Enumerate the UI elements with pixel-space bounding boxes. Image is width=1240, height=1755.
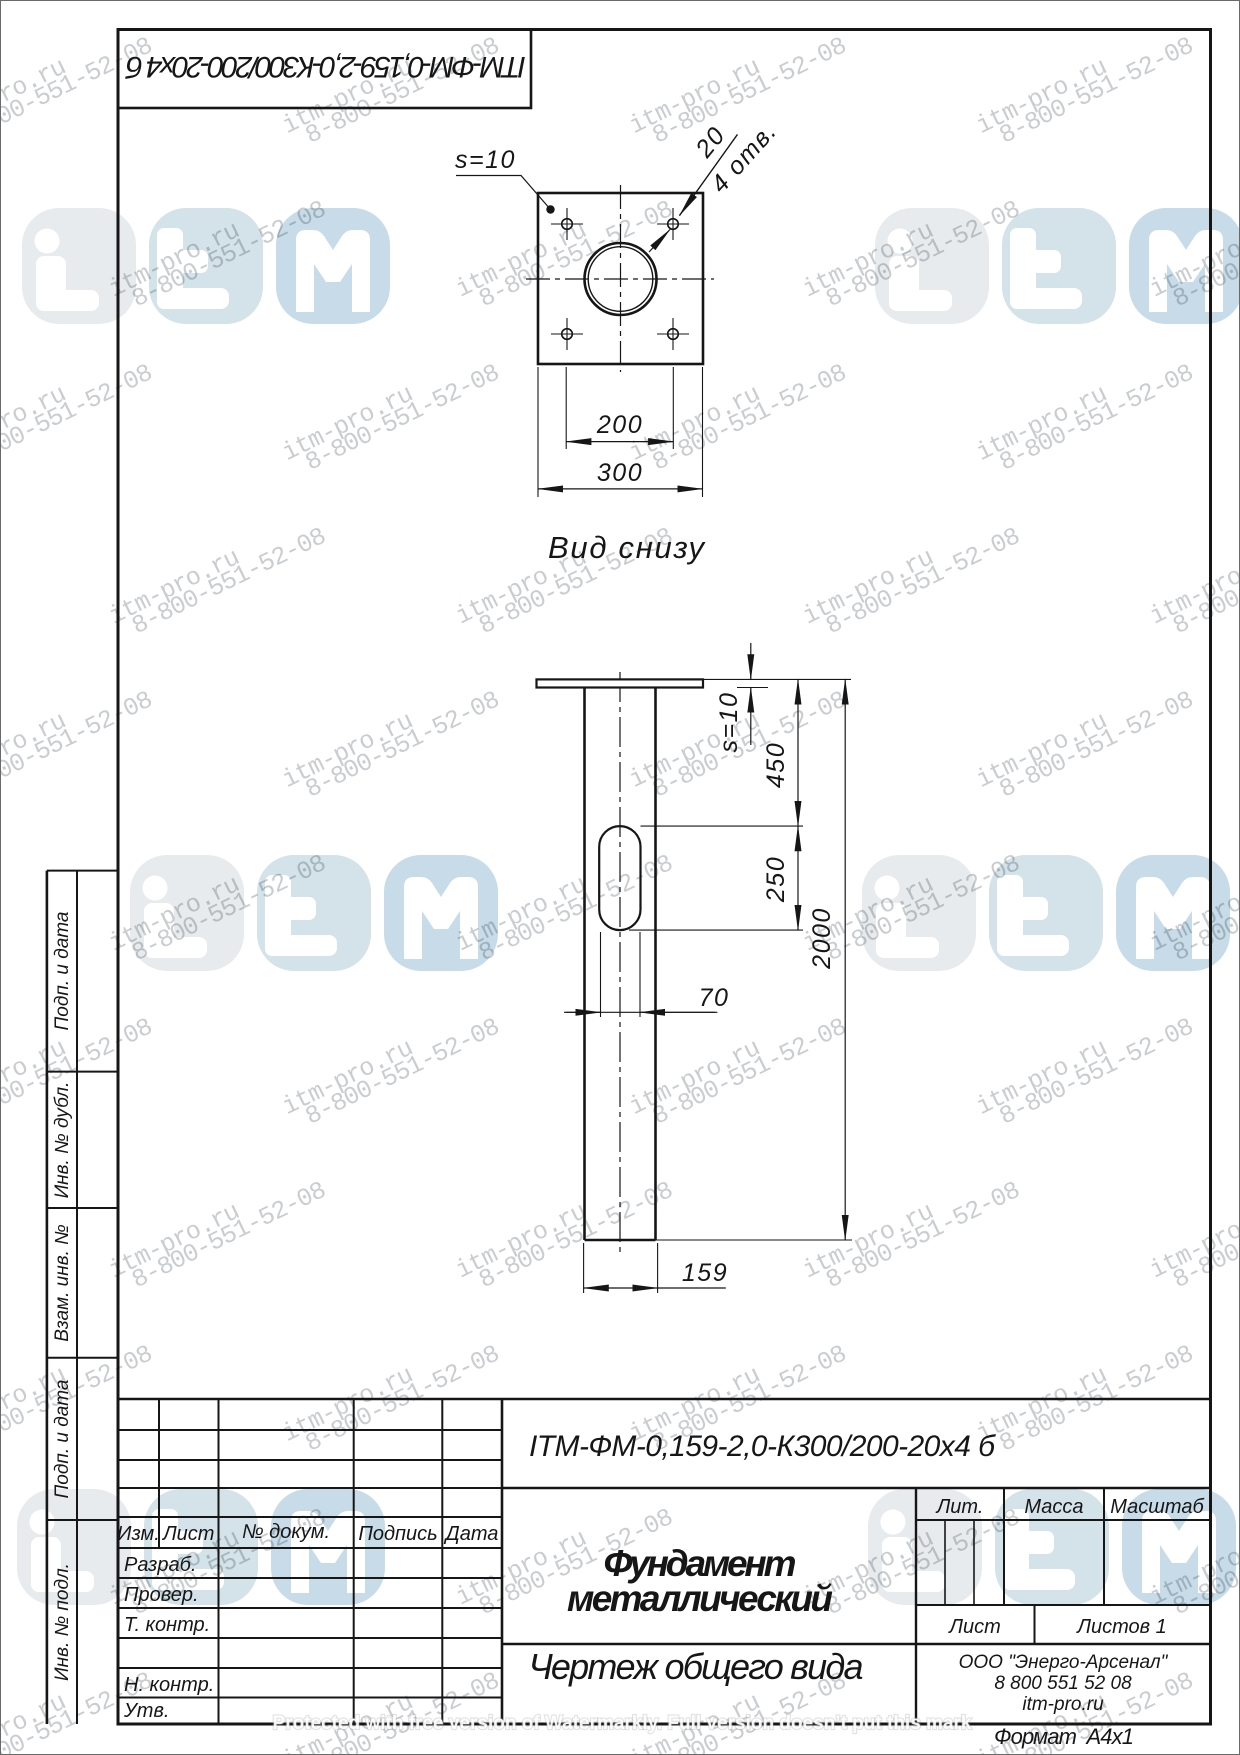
- svg-text:159: 159: [682, 1259, 728, 1287]
- svg-text:ITM-ФМ-0,159-2,0-К300/200-20x4: ITM-ФМ-0,159-2,0-К300/200-20x4 б: [529, 1430, 996, 1463]
- svg-text:2000: 2000: [808, 907, 836, 970]
- svg-text:Т. контр.: Т. контр.: [124, 1614, 210, 1636]
- svg-text:450: 450: [762, 742, 790, 788]
- svg-text:Лист: Лист: [161, 1523, 215, 1545]
- svg-text:Чертеж общего вида: Чертеж общего вида: [529, 1646, 864, 1687]
- svg-text:Подп. и дата: Подп. и дата: [52, 1380, 73, 1499]
- svg-text:Листов 1: Листов 1: [1075, 1616, 1167, 1638]
- svg-text:металлический: металлический: [567, 1578, 833, 1619]
- svg-text:ООО "Энерго-Арсенал": ООО "Энерго-Арсенал": [959, 1652, 1169, 1673]
- svg-text:Инв. № подл.: Инв. № подл.: [52, 1563, 73, 1681]
- svg-text:250: 250: [762, 856, 790, 903]
- svg-text:ITM-ФМ-0,159-2,0-К300/200-20x4: ITM-ФМ-0,159-2,0-К300/200-20x4 б: [125, 50, 526, 83]
- svg-text:Н. контр.: Н. контр.: [124, 1674, 214, 1696]
- svg-text:Изм.: Изм.: [117, 1523, 160, 1545]
- svg-text:Разраб.: Разраб.: [124, 1554, 196, 1576]
- svg-text:Масса: Масса: [1024, 1496, 1083, 1518]
- svg-text:Масштаб: Масштаб: [1110, 1496, 1204, 1518]
- svg-text:Protected with free version of: Protected with free version of Watermark…: [273, 1713, 972, 1734]
- svg-text:s=10: s=10: [715, 692, 743, 753]
- svg-text:Подпись: Подпись: [358, 1523, 437, 1545]
- svg-text:200: 200: [596, 411, 643, 439]
- svg-text:s=10: s=10: [455, 146, 516, 174]
- svg-text:Взам. инв. №: Взам. инв. №: [52, 1224, 73, 1342]
- svg-text:Лит.: Лит.: [935, 1496, 984, 1518]
- svg-text:Инв. № дубл.: Инв. № дубл.: [52, 1082, 73, 1199]
- svg-text:8 800 551 52 08: 8 800 551 52 08: [994, 1673, 1132, 1694]
- svg-text:Провер.: Провер.: [124, 1584, 199, 1606]
- svg-text:Утв.: Утв.: [123, 1700, 169, 1722]
- svg-text:Вид снизу: Вид снизу: [548, 530, 707, 565]
- svg-text:Формат А4х1: Формат А4х1: [994, 1724, 1134, 1749]
- svg-text:Лист: Лист: [947, 1616, 1001, 1638]
- svg-text:Дата: Дата: [444, 1523, 499, 1545]
- svg-text:Подп. и дата: Подп. и дата: [52, 912, 73, 1031]
- svg-text:300: 300: [597, 459, 643, 487]
- svg-text:№ докум.: № докум.: [242, 1521, 330, 1543]
- svg-text:70: 70: [699, 984, 730, 1012]
- svg-text:itm-pro.ru: itm-pro.ru: [1022, 1694, 1104, 1715]
